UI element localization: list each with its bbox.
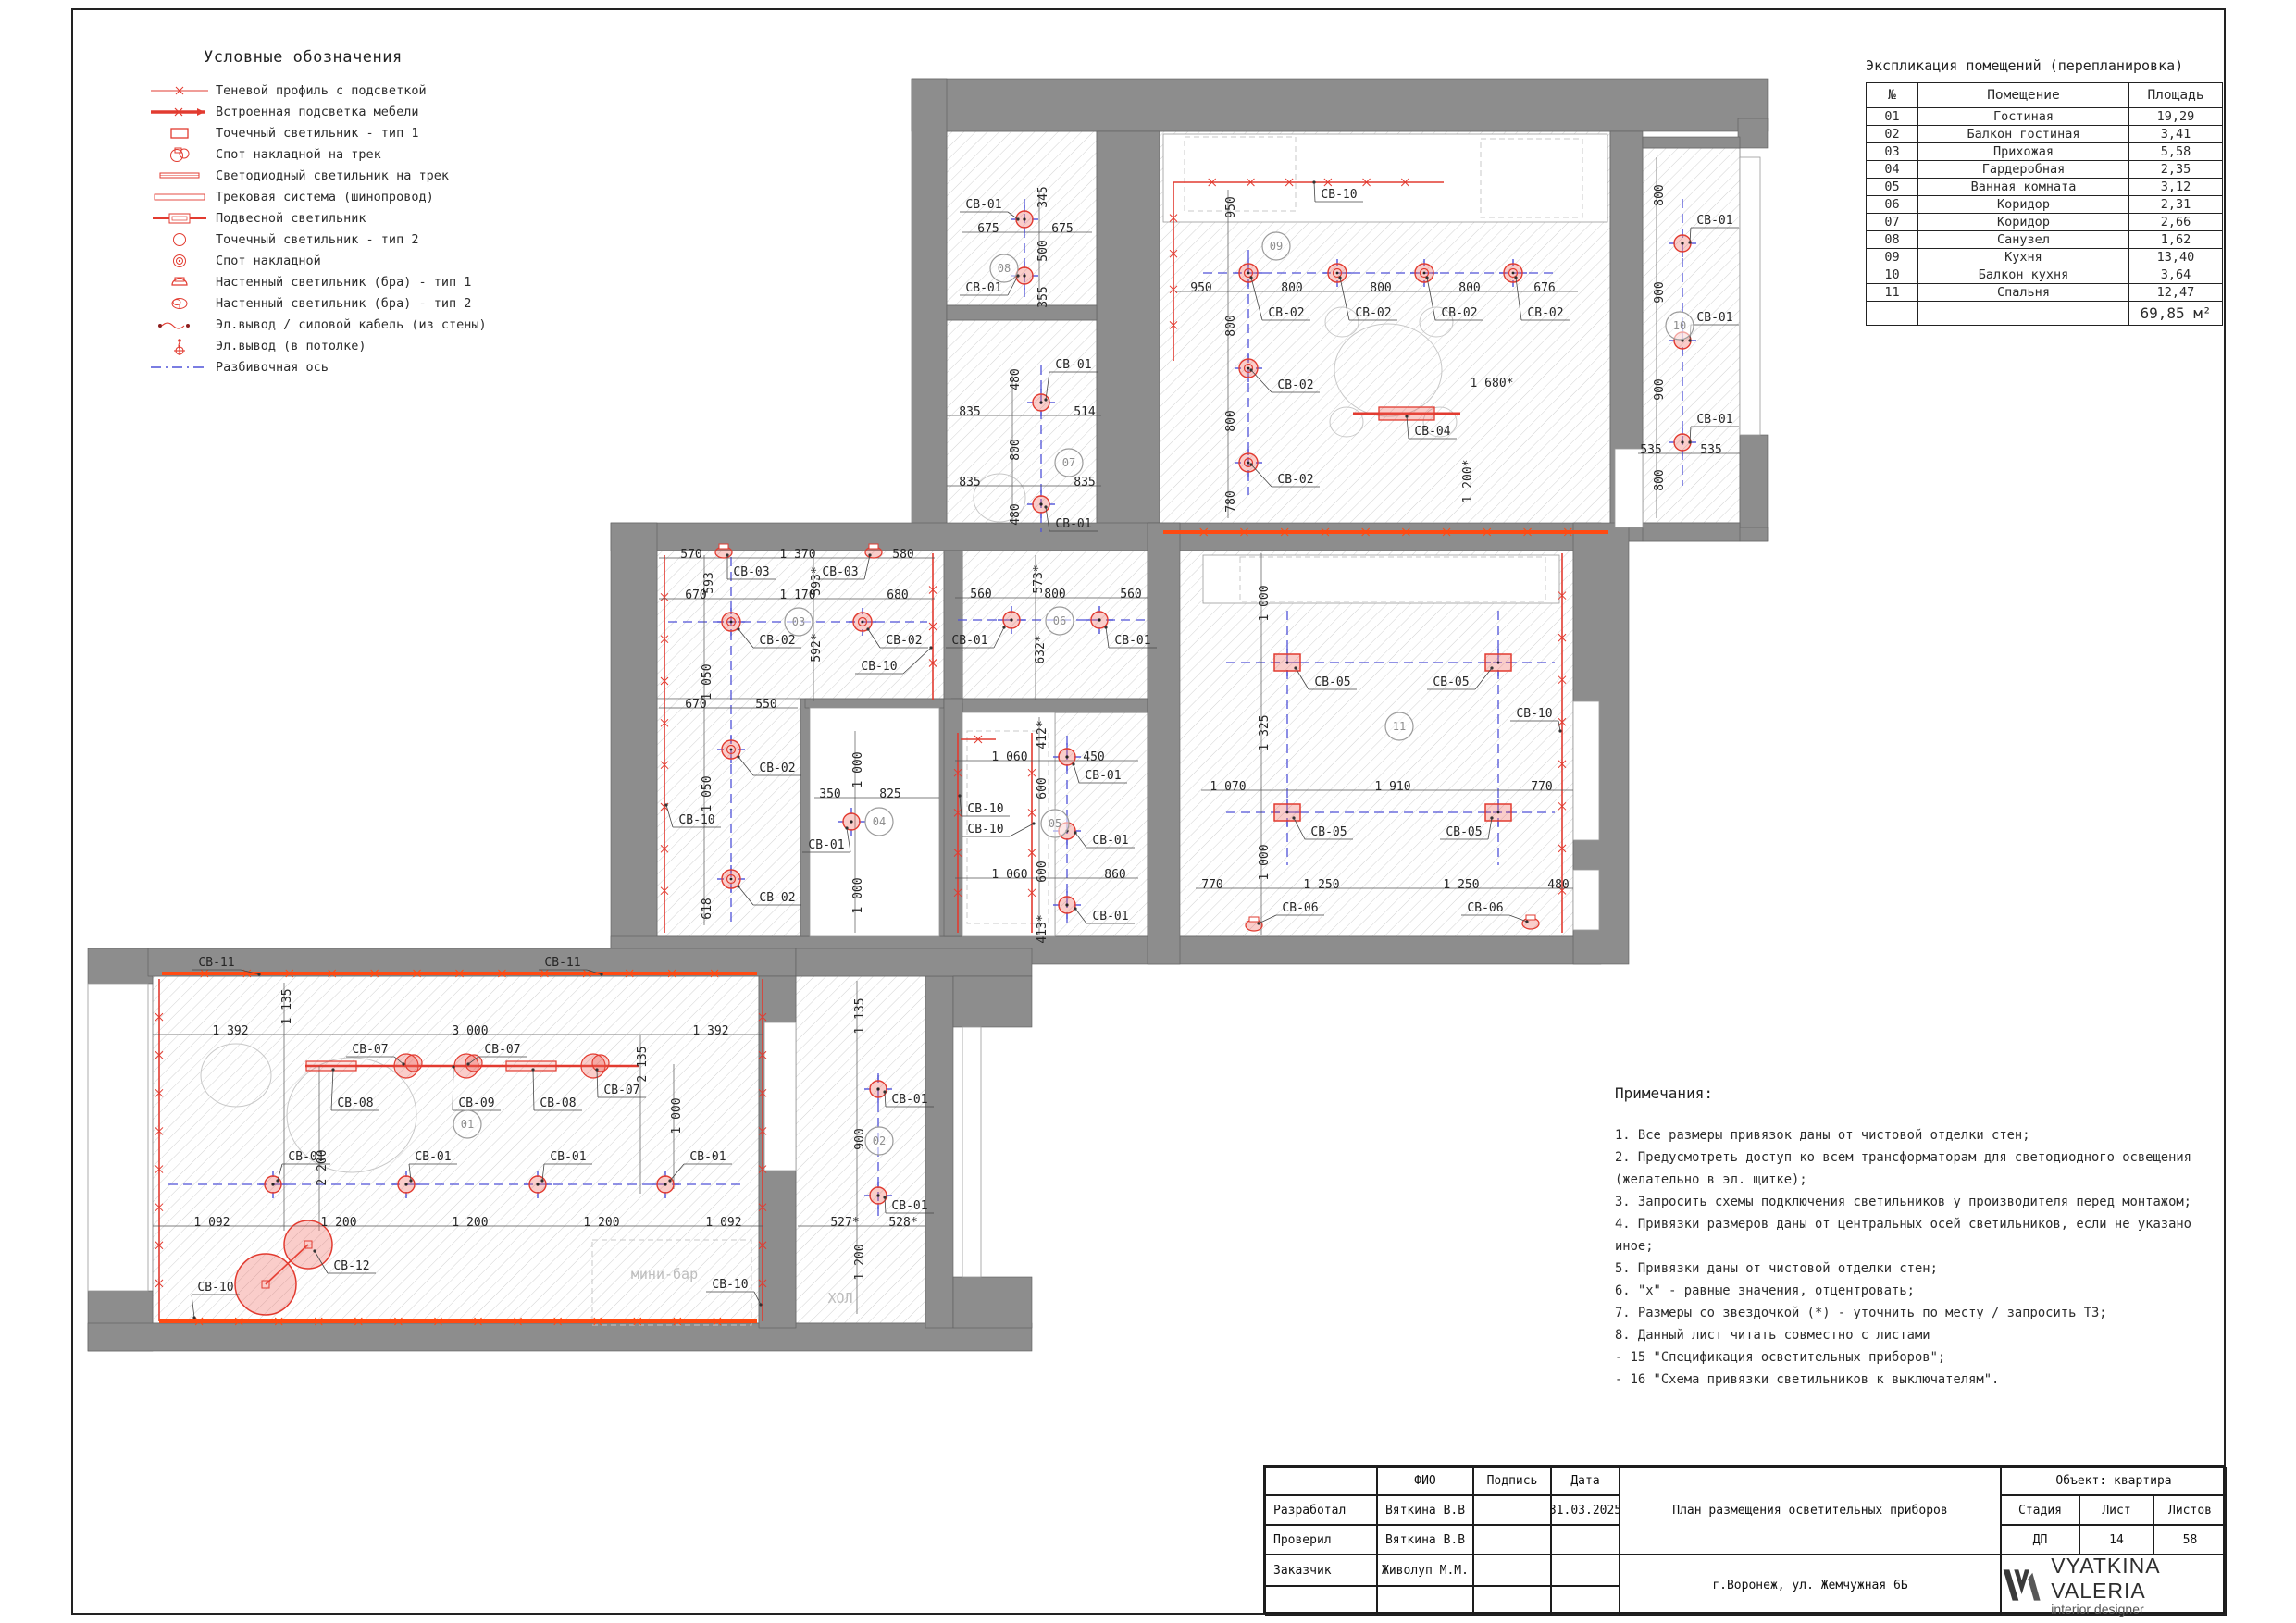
furn-icon <box>143 103 216 121</box>
led-track-bar <box>506 1061 556 1071</box>
ceil-icon <box>143 337 216 355</box>
dimension-text: мини-бар <box>631 1266 698 1282</box>
window-or-floor <box>1203 555 1559 603</box>
spot-center <box>1512 272 1515 275</box>
dimension-text: 800 <box>1224 410 1238 431</box>
dimension-text: 560 <box>970 588 991 601</box>
dimension-text: 1 250 <box>1303 878 1339 892</box>
fixture-label: СВ-10 <box>967 823 1003 836</box>
wall <box>944 699 962 936</box>
logo-sub: interior designer <box>2051 1602 2226 1617</box>
downlight-center <box>404 1183 407 1185</box>
note-line: 8. Данный лист читать совместно с листам… <box>1615 1324 2226 1346</box>
light-center <box>1286 662 1289 664</box>
leader-dot <box>883 1090 886 1093</box>
track-spot-head <box>405 1055 422 1072</box>
fixture-label: СВ-02 <box>886 634 922 648</box>
dimension-text: 527* <box>830 1216 859 1230</box>
legend-item-label: Спот накладной <box>216 254 321 268</box>
titleblock-cell: ФИО <box>1377 1467 1473 1495</box>
downlight-center <box>876 1087 879 1090</box>
legend-item: Спот накладной <box>143 250 625 271</box>
dimension-text: 1 200 <box>320 1216 356 1230</box>
leader-dot <box>883 1196 886 1198</box>
dimension-text: 680 <box>887 588 908 602</box>
note-line: 7. Размеры со звездочкой (*) - уточнить … <box>1615 1302 2226 1324</box>
dimension-text: 500 <box>1036 240 1050 261</box>
leader-dot <box>331 1068 334 1071</box>
leader-dot <box>257 973 260 975</box>
spot-center <box>1247 272 1250 275</box>
fixture-label: СВ-12 <box>333 1259 369 1273</box>
room-table: Экспликация помещений (перепланировка) №… <box>1866 57 2223 326</box>
table-row: 06Коридор2,31 <box>1867 196 2223 214</box>
table-cell: 02 <box>1867 126 1918 143</box>
titleblock-cell: Разработал <box>1265 1495 1377 1525</box>
leader-dot <box>759 1303 762 1306</box>
leader-dot <box>664 803 667 806</box>
fixture-label: СВ-05 <box>1310 825 1347 839</box>
leader-dot <box>466 1062 469 1065</box>
fixture-label: СВ-07 <box>484 1043 520 1057</box>
dimension-text: 1 000 <box>1258 585 1272 621</box>
spot-center <box>730 749 733 751</box>
window-or-floor <box>1573 870 1599 930</box>
dimension-text: 770 <box>1531 780 1552 794</box>
table-row: 11Спальня12,47 <box>1867 284 2223 302</box>
leader-dot <box>600 973 602 975</box>
wall <box>912 79 947 541</box>
titleblock-cell <box>1551 1525 1620 1555</box>
leader-dot <box>958 794 961 797</box>
window-or-floor <box>962 1027 981 1277</box>
table-cell: Коридор <box>1918 196 2129 214</box>
leader-dot <box>402 1062 404 1065</box>
leader-dot <box>1292 816 1295 819</box>
table-cell: Балкон гостиная <box>1918 126 2129 143</box>
downlight-center <box>1039 502 1042 505</box>
titleblock-cell: Живолуп М.М. <box>1377 1555 1473 1586</box>
table-total-row: 69,85 м² <box>1867 302 2223 326</box>
dimension-text: 535 <box>1640 443 1661 457</box>
note-line: 1. Все размеры привязок даны от чистовой… <box>1615 1124 2226 1146</box>
dimension-text: 1 060 <box>991 750 1027 764</box>
titleblock-cell <box>1551 1555 1620 1586</box>
dimension-text: 800 <box>1224 315 1238 336</box>
leader-dot <box>1249 276 1252 279</box>
downlight-center <box>1023 217 1025 220</box>
titleblock-cell <box>1473 1495 1551 1525</box>
fixture-label: СВ-01 <box>689 1150 726 1164</box>
wall <box>611 523 657 962</box>
note-line: иное; <box>1615 1235 2226 1258</box>
fixture-label: СВ-10 <box>197 1281 233 1295</box>
wall <box>947 305 1097 320</box>
fixture-label: СВ-01 <box>550 1150 586 1164</box>
table-row: 09Кухня13,40 <box>1867 249 2223 266</box>
table-cell: 2,31 <box>2129 196 2223 214</box>
downlight-center <box>1010 618 1012 621</box>
fixture-label: СВ-01 <box>1696 413 1732 427</box>
room-number: 01 <box>461 1118 474 1131</box>
legend-item: Точечный светильник - тип 1 <box>143 122 625 143</box>
dimension-text: 1 050 <box>701 663 714 700</box>
dimension-text: 1 325 <box>1258 714 1272 750</box>
leader-dot <box>1312 180 1315 183</box>
room-number: 09 <box>1270 240 1283 253</box>
fixture-label: СВ-11 <box>544 956 580 970</box>
dimension-text: 593 <box>702 572 716 593</box>
legend-item-label: Настенный светильник (бра) - тип 1 <box>216 275 471 290</box>
led-track-bar <box>306 1061 356 1071</box>
dimension-text: 825 <box>879 787 900 801</box>
table-row: 01Гостиная19,29 <box>1867 108 2223 126</box>
dimension-text: 835 <box>959 405 980 419</box>
logo-name: VYATKINA VALERIA <box>2051 1554 2226 1604</box>
titleblock-cell: Проверил <box>1265 1525 1377 1555</box>
downlight-center <box>1065 903 1068 906</box>
dimension-text: 600 <box>1036 861 1049 882</box>
wall <box>800 699 810 936</box>
spot-center <box>862 621 864 624</box>
room-table-grid: №ПомещениеПлощадь 01Гостиная19,2902Балко… <box>1866 82 2223 326</box>
room-number: 10 <box>1673 319 1686 332</box>
leader-dot <box>737 627 739 630</box>
titleblock-cell <box>1377 1586 1473 1616</box>
fixture-label: СВ-01 <box>891 1199 927 1213</box>
legend-item-label: Разбивочная ось <box>216 360 329 375</box>
leader-dot <box>737 885 739 887</box>
fixture-label: СВ-02 <box>759 634 795 648</box>
dimension-text: 860 <box>1104 868 1125 882</box>
light-center <box>1497 811 1500 814</box>
leader-dot <box>1257 922 1260 924</box>
fixture-label: СВ-08 <box>337 1096 373 1110</box>
room-number: 04 <box>873 815 886 828</box>
title-block: ФИОПодписьДатаРазработалВяткина В.В31.03… <box>1263 1465 2225 1614</box>
titleblock-cell: 31.03.2025 <box>1551 1495 1620 1525</box>
dimension-text: 1 200 <box>452 1216 488 1230</box>
leader-dot <box>1688 440 1691 443</box>
dimension-text: 1 135 <box>853 997 867 1034</box>
legend-items: Теневой профиль с подсветкой Встроенная … <box>143 80 625 378</box>
room-table-header: №ПомещениеПлощадь <box>1867 83 2223 108</box>
fixture-label: СВ-03 <box>822 565 858 579</box>
note-line: 3. Запросить схемы подключения светильни… <box>1615 1191 2226 1213</box>
leader-dot <box>1074 831 1076 834</box>
leader-dot <box>540 1179 543 1182</box>
dimension-text: 480 <box>1009 368 1023 390</box>
leader-dot <box>313 1249 316 1252</box>
dimension-text: 770 <box>1201 878 1222 892</box>
table-cell: 04 <box>1867 161 1918 179</box>
circ-icon <box>143 230 216 249</box>
fixture-label: СВ-01 <box>808 838 844 852</box>
fixture-label: СВ-09 <box>458 1096 494 1110</box>
axis-icon <box>143 358 216 377</box>
table-cell: 1,62 <box>2129 231 2223 249</box>
legend-item-label: Спот накладной на трек <box>216 147 381 162</box>
dimension-text: 580 <box>892 548 913 562</box>
fixture-label: СВ-01 <box>1696 214 1732 228</box>
legend-item-label: Подвесной светильник <box>216 211 366 226</box>
wall <box>951 699 1148 712</box>
dimension-text: 600 <box>1036 777 1049 799</box>
leader-dot <box>531 1068 534 1071</box>
dimension-text: 800 <box>1044 588 1065 601</box>
leader-dot <box>929 646 932 649</box>
fixture-label: СВ-10 <box>861 660 897 674</box>
dimension-text: 900 <box>1653 378 1667 400</box>
table-row: 05Ванная комната3,12 <box>1867 179 2223 196</box>
room-floor-hatch <box>1177 551 1573 936</box>
window-or-floor <box>1740 157 1760 435</box>
leader-dot <box>595 1068 598 1071</box>
dimension-text: 570 <box>680 548 701 562</box>
note-line: - 16 "Схема привязки светильников к выкл… <box>1615 1369 2226 1391</box>
fixture-label: СВ-01 <box>965 198 1001 212</box>
drawing-sheet: СВ-01СВ-01675675345500355СВ-01СВ-0183551… <box>0 0 2296 1623</box>
dimension-text: 800 <box>1009 439 1023 460</box>
table-row: 04Гардеробная2,35 <box>1867 161 2223 179</box>
downlight-center <box>1681 440 1683 443</box>
fixture-label: СВ-01 <box>951 634 987 648</box>
leader-dot <box>845 826 848 829</box>
notes-lines: 1. Все размеры привязок даны от чистовой… <box>1615 1124 2226 1391</box>
wall <box>953 1277 1032 1328</box>
leader-dot <box>668 1179 671 1182</box>
fixture-label: СВ-10 <box>1516 707 1552 721</box>
table-cell: 03 <box>1867 143 1918 161</box>
room-number: 07 <box>1062 456 1075 469</box>
dimension-text: 800 <box>1458 281 1480 295</box>
note-line: 5. Привязки даны от чистовой отделки сте… <box>1615 1258 2226 1280</box>
dimension-text: 1 392 <box>212 1024 248 1038</box>
leader-dot <box>1405 415 1408 417</box>
dimension-text: 1 370 <box>779 548 815 562</box>
notes: Примечания: 1. Все размеры привязок даны… <box>1615 1084 2226 1391</box>
leader-dot <box>452 1065 454 1068</box>
titleblock-cell: 58 <box>2153 1525 2227 1555</box>
fixture-label: СВ-01 <box>1085 769 1121 783</box>
leader-dot <box>868 553 871 556</box>
dimension-text: 1 135 <box>280 988 294 1024</box>
dimension-text: 355 <box>1036 286 1050 307</box>
dimension-text: 1 050 <box>701 775 714 811</box>
dimension-text: 800 <box>1370 281 1391 295</box>
fixture-label: СВ-05 <box>1446 825 1482 839</box>
spot-center <box>1423 272 1426 275</box>
sconce-cap <box>1249 917 1259 922</box>
dimension-text: 413* <box>1036 914 1049 943</box>
studio-logo: VYATKINA VALERIA interior designer <box>2001 1555 2227 1616</box>
dimension-text: 450 <box>1083 750 1104 764</box>
leader-dot <box>1074 907 1076 910</box>
leader-dot <box>726 553 728 556</box>
room-number: 03 <box>792 615 805 628</box>
downlight-center <box>664 1183 666 1185</box>
spot-center <box>1247 462 1250 465</box>
leader-dot <box>1525 920 1528 923</box>
fixture-label: СВ-05 <box>1314 675 1350 689</box>
legend-item: Разбивочная ось <box>143 356 625 378</box>
fixture-label: СВ-01 <box>1092 910 1128 923</box>
dimension-text: 676 <box>1533 281 1555 295</box>
wall <box>88 948 153 984</box>
leader-dot <box>1688 241 1691 243</box>
downlight-center <box>850 820 852 823</box>
legend-item: Настенный светильник (бра) - тип 2 <box>143 292 625 314</box>
light-center <box>1286 811 1289 814</box>
fixture-label: СВ-01 <box>1696 311 1732 325</box>
fixture-label: СВ-01 <box>1114 634 1150 648</box>
dimension-text: 412* <box>1036 720 1049 749</box>
dimension-text: 1 392 <box>692 1024 728 1038</box>
leader-dot <box>737 755 739 758</box>
table-cell: 3,64 <box>2129 266 2223 284</box>
titleblock-cell <box>1551 1586 1620 1616</box>
leader-dot <box>1104 626 1107 628</box>
downlight-center <box>1098 618 1100 621</box>
fixture-label: СВ-02 <box>1277 473 1313 487</box>
fixture-label: СВ-10 <box>678 813 714 827</box>
fixture-label: СВ-11 <box>198 956 234 970</box>
legend-title: Условные обозначения <box>204 48 625 67</box>
ledtrack-icon <box>143 167 216 185</box>
table-cell: 2,35 <box>2129 161 2223 179</box>
bra1-icon <box>143 273 216 291</box>
legend-item-label: Трековая система (шинопровод) <box>216 190 434 204</box>
leader-dot <box>1425 276 1428 279</box>
table-cell: 08 <box>1867 231 1918 249</box>
note-line: - 15 "Спецификация осветительных приборо… <box>1615 1346 2226 1369</box>
legend-item: Эл.вывод / силовой кабель (из стены) <box>143 314 625 335</box>
window-or-floor <box>1615 449 1643 527</box>
fixture-label: СВ-01 <box>891 1093 927 1107</box>
legend-item: Теневой профиль с подсветкой <box>143 80 625 101</box>
leader-dot <box>1002 626 1005 628</box>
table-cell: 10 <box>1867 266 1918 284</box>
dimension-text: 550 <box>755 698 776 712</box>
window-or-floor <box>1573 701 1599 840</box>
wall <box>1740 435 1768 541</box>
fixture-label: СВ-01 <box>1092 834 1128 848</box>
fixture-label: СВ-02 <box>759 891 795 905</box>
table-cell: 19,29 <box>2129 108 2223 126</box>
dimension-text: 480 <box>1547 878 1569 892</box>
bra2-icon <box>143 294 216 313</box>
table-cell: 5,58 <box>2129 143 2223 161</box>
dimension-text: 350 <box>819 787 840 801</box>
legend-item-label: Настенный светильник (бра) - тип 2 <box>216 296 471 311</box>
dimension-text: 1 680* <box>1471 377 1514 390</box>
shadow-icon <box>143 81 216 100</box>
track-spot-head <box>592 1055 609 1072</box>
dimension-text: 514 <box>1074 405 1096 419</box>
dimension-text: 1 000 <box>670 1097 684 1134</box>
titleblock-cell: Вяткина В.В <box>1377 1525 1473 1555</box>
table-cell: Гостиная <box>1918 108 2129 126</box>
table-row: 07Коридор2,66 <box>1867 214 2223 231</box>
fixture-label: СВ-01 <box>1055 517 1091 531</box>
table-cell: Санузел <box>1918 231 2129 249</box>
table-cell: 09 <box>1867 249 1918 266</box>
titleblock-cell: Подпись <box>1473 1467 1551 1495</box>
titleblock-cell: Листов <box>2153 1495 2227 1525</box>
pendant-icon <box>143 209 216 228</box>
room-floor-hatch <box>947 320 1097 527</box>
table-row: 03Прихожая5,58 <box>1867 143 2223 161</box>
fixture-label: СВ-01 <box>288 1150 324 1164</box>
room-number: 05 <box>1049 817 1061 830</box>
dimension-text: 1 070 <box>1210 780 1246 794</box>
downlight-center <box>876 1194 879 1196</box>
sconce-cap <box>1526 915 1535 920</box>
legend-item-label: Эл.вывод (в потолке) <box>216 339 366 353</box>
dimension-text: 675 <box>1051 222 1073 236</box>
fixture-label: СВ-01 <box>965 281 1001 295</box>
trackspot-icon <box>143 145 216 164</box>
dimension-text: 670 <box>685 698 706 712</box>
dimension-text: 345 <box>1036 186 1050 207</box>
titleblock-cell: Вяткина В.В <box>1377 1495 1473 1525</box>
downlight-center <box>1065 755 1068 758</box>
dimension-text: 560 <box>1120 588 1141 601</box>
leader-dot <box>1249 463 1252 465</box>
note-line: (желательно в эл. щитке); <box>1615 1169 2226 1191</box>
dimension-text: 480 <box>1009 503 1023 525</box>
legend-item: Трековая система (шинопровод) <box>143 186 625 207</box>
window-or-floor <box>764 1022 796 1171</box>
room-number: 11 <box>1393 720 1406 733</box>
logo-w-icon <box>2002 1565 2042 1605</box>
titleblock-cell <box>1265 1467 1377 1495</box>
table-cell: Коридор <box>1918 214 2129 231</box>
titleblock-cell <box>1473 1555 1551 1586</box>
fixture-label: СВ-07 <box>352 1043 388 1057</box>
table-cell: Ванная комната <box>1918 179 2129 196</box>
leader-dot <box>1490 666 1493 669</box>
spot-center <box>730 621 733 624</box>
wall <box>1148 523 1180 964</box>
legend-item-label: Встроенная подсветка мебели <box>216 105 418 119</box>
fixture-label: СВ-02 <box>1527 306 1563 320</box>
legend-item: Подвесной светильник <box>143 207 625 229</box>
fixture-label: СВ-10 <box>712 1278 748 1292</box>
leader-dot <box>1016 217 1019 220</box>
dimension-text: 1 200* <box>1461 460 1475 503</box>
legend-item: Спот накладной на трек <box>143 143 625 165</box>
legend-item-label: Точечный светильник - тип 1 <box>216 126 418 141</box>
legend-item-label: Точечный светильник - тип 2 <box>216 232 418 247</box>
table-cell: Кухня <box>1918 249 2129 266</box>
total-area: 69,85 м² <box>2129 302 2223 326</box>
note-line: 2. Предусмотреть доступ ко всем трансфор… <box>1615 1146 2226 1169</box>
table-cell: Гардеробная <box>1918 161 2129 179</box>
leader-dot <box>1044 505 1047 508</box>
sconce-cap <box>869 544 878 549</box>
notes-title: Примечания: <box>1615 1084 2226 1102</box>
leader-dot <box>1249 368 1252 371</box>
leader-dot <box>1032 822 1035 824</box>
table-cell: 06 <box>1867 196 1918 214</box>
dimension-text: 2 135 <box>636 1046 650 1082</box>
legend-item-label: Светодиодный светильник на трек <box>216 168 449 183</box>
leader-dot <box>1044 398 1047 401</box>
leader-dot <box>1072 762 1074 765</box>
dimension-text: 1 092 <box>193 1216 230 1230</box>
sconce-cap <box>719 544 728 549</box>
